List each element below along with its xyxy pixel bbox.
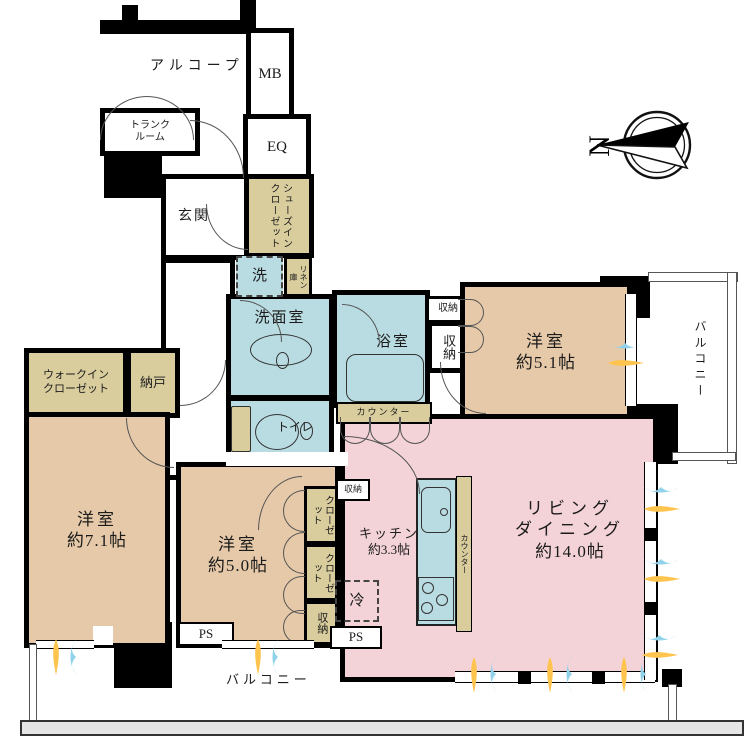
room-51-label: 洋室 約5.1帖	[516, 331, 576, 374]
cool-air-icon	[268, 637, 282, 677]
storage-b-label: 収納	[440, 329, 456, 365]
balcony-right-rail-bottom	[672, 452, 736, 461]
toilet-button-icon	[300, 422, 313, 440]
walkin-label: ウォークイン クローゼット	[43, 369, 109, 397]
door-arc-trunk	[100, 96, 147, 140]
eq-label: EQ	[267, 138, 287, 157]
room-linen: リネン庫	[284, 256, 312, 298]
window-mullion	[645, 528, 658, 541]
room-71-label: 洋室 約7.1帖	[67, 509, 127, 552]
balcony-right-label: バルコニー	[692, 320, 707, 420]
storage-a-label: 収納	[438, 303, 458, 316]
balcony-right-rail-top	[648, 272, 738, 282]
room-walkin: ウォークイン クローゼット	[24, 348, 128, 418]
ps-box-2: PS	[330, 626, 382, 649]
warm-air-icon	[607, 357, 645, 369]
storage-c-label: 収納	[314, 608, 328, 638]
bathtub-icon	[346, 354, 424, 402]
washer-label: 洗	[252, 267, 267, 286]
cool-air-icon	[641, 483, 681, 497]
linen-label: リネン庫	[288, 262, 308, 292]
cool-air-icon	[639, 631, 679, 645]
closet-2-label: クローゼット	[309, 551, 334, 595]
window-room71	[36, 640, 94, 649]
toilet-tank-icon	[231, 406, 251, 452]
balcony-right-rail-side	[727, 272, 737, 464]
closet-1: クローゼット	[304, 486, 338, 544]
wall-niche	[93, 626, 113, 645]
cool-air-icon	[605, 339, 645, 353]
bifold-door-arc	[458, 299, 484, 326]
wall-stub	[122, 5, 138, 22]
room-meter-box: MB	[246, 28, 294, 120]
faucet-icon	[440, 508, 448, 516]
closet-2: クローゼット	[304, 544, 338, 601]
warm-air-icon	[641, 649, 679, 661]
warm-air-icon	[618, 656, 630, 694]
warm-air-icon	[544, 656, 556, 694]
compass-north-icon: N	[585, 102, 725, 192]
window-mullion	[592, 671, 605, 684]
ps-1-label: PS	[199, 626, 213, 642]
passage	[226, 452, 348, 466]
room-nando: 納戸	[126, 348, 180, 418]
floorplan: N アルコープ MB EQ トランク ルーム 玄関 シューズインクローゼット リ…	[0, 0, 750, 745]
door-arc-room51	[440, 362, 486, 414]
meter-box-label: MB	[258, 65, 281, 84]
fridge-space: 冷	[335, 580, 379, 622]
warm-air-icon	[50, 638, 62, 676]
room-shoes-closet: シューズインクローゼット	[244, 174, 314, 258]
cool-air-icon	[641, 555, 681, 569]
wall-stub	[240, 0, 256, 22]
shoes-closet-label: シューズインクローゼット	[267, 180, 292, 252]
burner-icon	[421, 602, 433, 614]
room-eq: EQ	[243, 114, 311, 180]
cool-air-icon	[486, 654, 500, 694]
warm-air-icon	[252, 638, 264, 676]
basin-drain-icon	[276, 352, 289, 369]
kitchen-counter-label: カウンター	[459, 534, 469, 574]
burner-icon	[436, 594, 448, 606]
living-dining-label: リビング ダイニング 約14.0帖	[480, 498, 660, 562]
warm-air-icon	[643, 573, 681, 585]
window-mullion	[518, 671, 531, 684]
warm-air-icon	[468, 656, 480, 694]
compass-label: N	[585, 135, 616, 157]
wall-top-bar	[100, 20, 256, 34]
bifold-door-arc	[458, 326, 484, 353]
burner-icon	[422, 582, 434, 594]
nando-label: 納戸	[140, 375, 166, 391]
balcony-partition	[668, 684, 677, 724]
kitchen-counter: カウンター	[456, 476, 472, 632]
balcony-bottom-edge	[20, 720, 744, 736]
toilet-bowl-icon	[255, 414, 299, 450]
washer-space: 洗	[236, 256, 283, 297]
door-arc-trunk	[147, 96, 194, 140]
bath-label: 浴室	[376, 333, 410, 352]
ps-2-label: PS	[349, 629, 363, 645]
closet-1-label: クローゼット	[309, 493, 334, 537]
balcony-bottom-left-rail	[29, 644, 37, 728]
window-mullion	[645, 602, 658, 615]
cool-air-icon	[562, 654, 576, 694]
warm-air-icon	[643, 503, 681, 515]
cool-air-icon	[66, 637, 80, 677]
door-arc-entrance	[190, 120, 244, 178]
fridge-label: 冷	[349, 592, 364, 611]
